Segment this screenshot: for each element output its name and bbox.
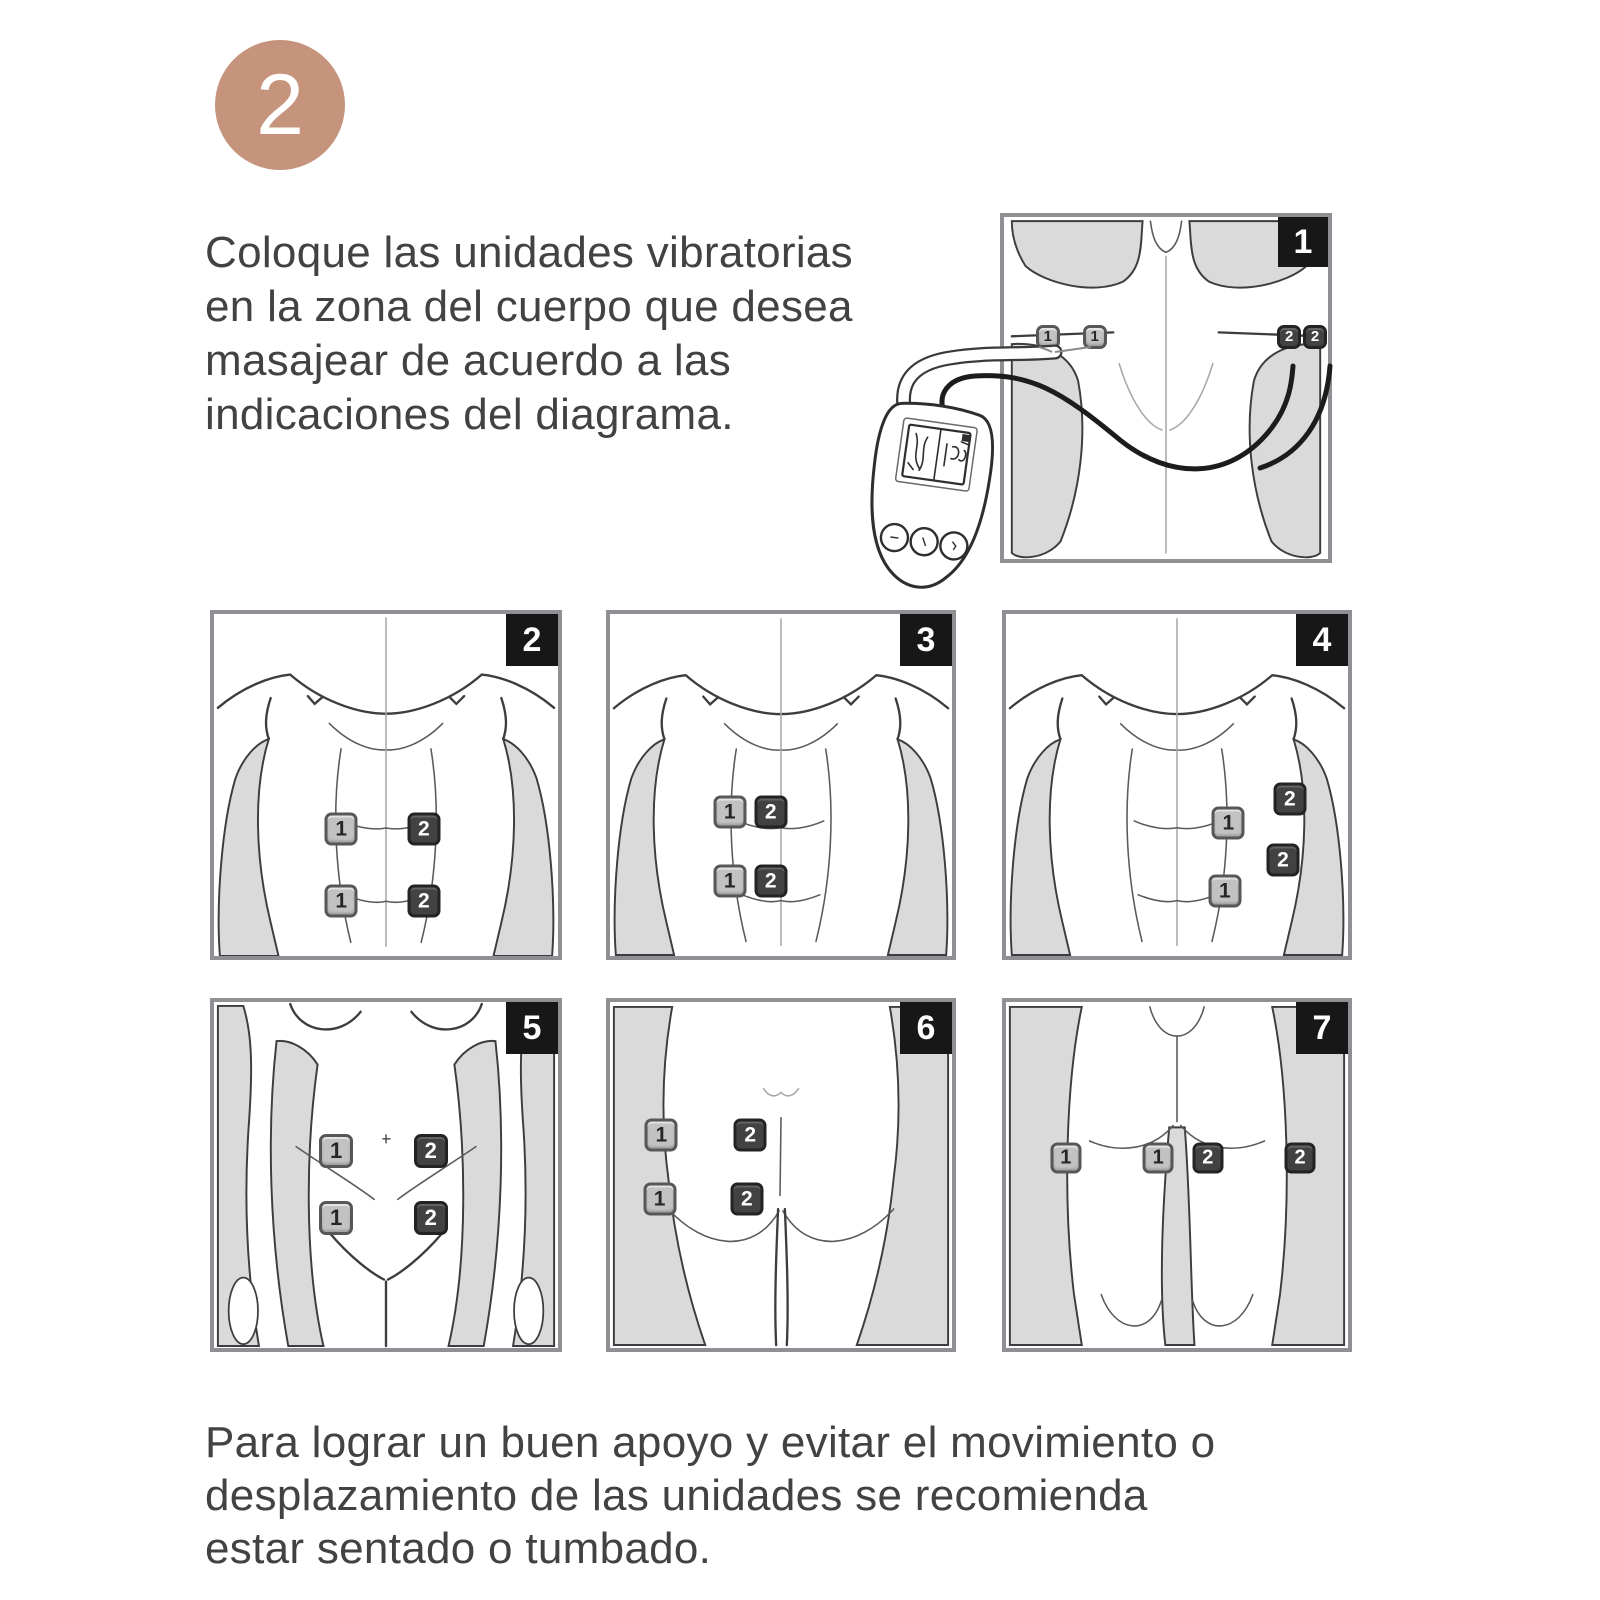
step-number: 2 bbox=[256, 56, 304, 155]
electrode-pad-2: 2 bbox=[1267, 844, 1300, 877]
electrode-pad-2: 2 bbox=[1285, 1142, 1316, 1173]
diagram-number-badge: 3 bbox=[900, 614, 952, 666]
screen-digits-graphic bbox=[944, 440, 969, 469]
electrode-pad-1: 1 bbox=[1212, 806, 1245, 839]
electrode-pad-1: 1 bbox=[319, 1134, 353, 1168]
electrode-pad-1: 1 bbox=[713, 796, 746, 829]
device-button bbox=[939, 531, 969, 561]
footer-line: Para lograr un buen apoyo y evitar el mo… bbox=[205, 1416, 1465, 1469]
intro-line: Coloque las unidades vibratorias bbox=[205, 226, 1005, 280]
diagram-3-abdomen-left: 1212 3 bbox=[606, 610, 956, 960]
electrode-pad-1: 1 bbox=[645, 1119, 678, 1152]
electrode-pad-1: 1 bbox=[1143, 1142, 1174, 1173]
electrode-pad-1: 1 bbox=[643, 1183, 676, 1216]
footer-paragraph: Para lograr un buen apoyo y evitar el mo… bbox=[205, 1416, 1465, 1575]
electrode-pad-1: 1 bbox=[1050, 1142, 1081, 1173]
intro-line: indicaciones del diagrama. bbox=[205, 388, 1005, 442]
diagram-number-badge: 7 bbox=[1296, 1002, 1348, 1054]
electrode-pad-1: 1 bbox=[319, 1201, 353, 1235]
electrode-pad-1: 1 bbox=[325, 813, 358, 846]
intro-line: en la zona del cuerpo que desea bbox=[205, 280, 1005, 334]
electrode-pad-2: 2 bbox=[730, 1183, 763, 1216]
instruction-page: 2 Coloque las unidades vibratorias en la… bbox=[0, 0, 1600, 1600]
pad-layer: 1122 bbox=[1004, 217, 1328, 559]
electrode-pad-2: 2 bbox=[1273, 782, 1306, 815]
diagram-7-thighs-rear: 1122 7 bbox=[1002, 998, 1352, 1352]
electrode-pad-2: 2 bbox=[1192, 1142, 1223, 1173]
step-number-badge: 2 bbox=[215, 40, 345, 170]
device-button bbox=[909, 526, 939, 556]
electrode-pad-2: 2 bbox=[734, 1119, 767, 1152]
diagram-4-abdomen-right: 2121 4 bbox=[1002, 610, 1352, 960]
diagram-2-abdomen: 1212 2 bbox=[210, 610, 562, 960]
intro-line: masajear de acuerdo a las bbox=[205, 334, 1005, 388]
diagram-number-badge: 4 bbox=[1296, 614, 1348, 666]
diagram-1-upper-back: 1122 1 bbox=[1000, 213, 1332, 563]
electrode-pad-1: 1 bbox=[1208, 875, 1241, 908]
diagram-5-lower-abdomen: 1212 5 bbox=[210, 998, 562, 1352]
diagram-number-badge: 5 bbox=[506, 1002, 558, 1054]
diagram-number-badge: 6 bbox=[900, 1002, 952, 1054]
electrode-pad-2: 2 bbox=[1303, 325, 1327, 349]
diagram-6-buttocks-rear: 1212 6 bbox=[606, 998, 956, 1352]
footer-line: estar sentado o tumbado. bbox=[205, 1522, 1465, 1575]
electrode-pad-1: 1 bbox=[713, 864, 746, 897]
electrode-pad-2: 2 bbox=[1277, 325, 1301, 349]
device-button-glyphs bbox=[890, 533, 956, 550]
electrode-pad-1: 1 bbox=[1083, 325, 1107, 349]
diagram-number-badge: 2 bbox=[506, 614, 558, 666]
electrode-pad-2: 2 bbox=[414, 1134, 448, 1168]
device-button bbox=[879, 522, 909, 552]
electrode-pad-1: 1 bbox=[1036, 325, 1060, 349]
footer-line: desplazamiento de las unidades se recomi… bbox=[205, 1469, 1465, 1522]
electrode-pad-2: 2 bbox=[407, 885, 440, 918]
electrode-pad-2: 2 bbox=[414, 1201, 448, 1235]
intro-paragraph: Coloque las unidades vibratorias en la z… bbox=[205, 226, 1005, 442]
electrode-pad-1: 1 bbox=[325, 885, 358, 918]
electrode-pad-2: 2 bbox=[407, 813, 440, 846]
electrode-pad-2: 2 bbox=[754, 864, 787, 897]
diagram-number-badge: 1 bbox=[1278, 217, 1328, 267]
electrode-pad-2: 2 bbox=[754, 796, 787, 829]
